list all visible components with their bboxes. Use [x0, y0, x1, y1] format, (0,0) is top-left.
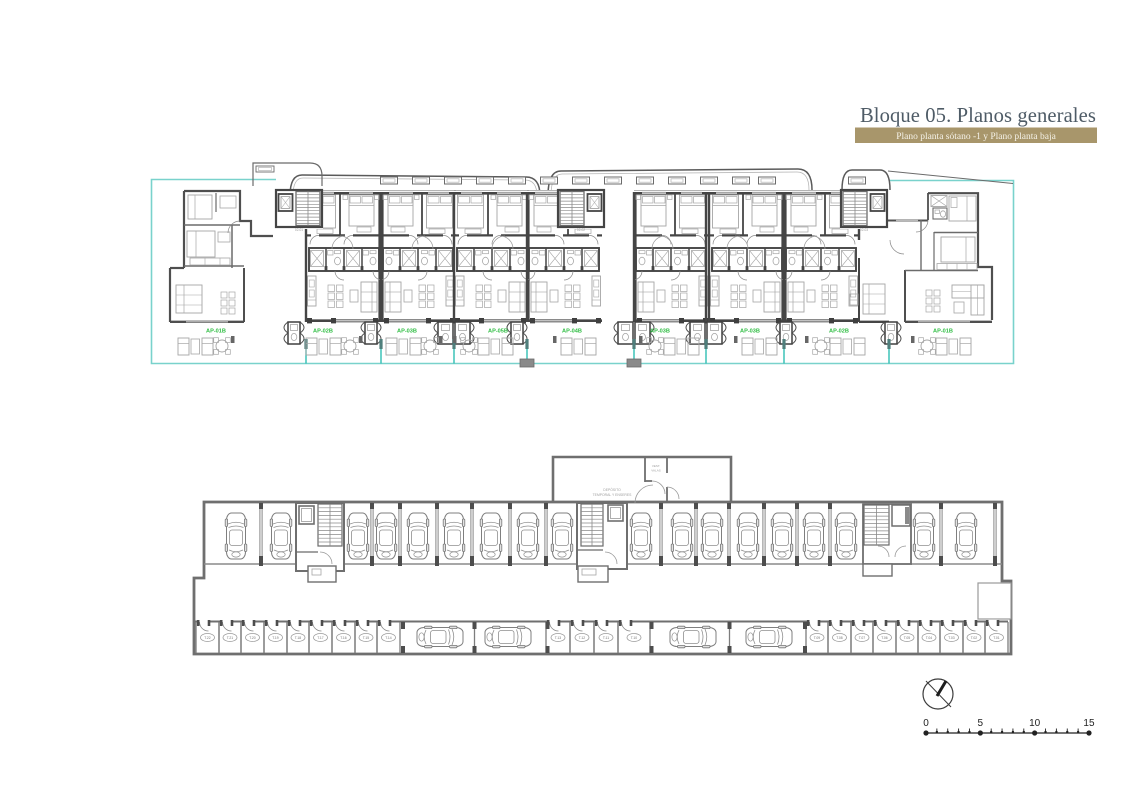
svg-text:AP-03B: AP-03B [650, 329, 670, 335]
svg-text:T.12: T.12 [579, 636, 586, 640]
svg-text:T.21: T.21 [227, 636, 234, 640]
svg-text:5: 5 [978, 718, 984, 729]
svg-text:T.20: T.20 [249, 636, 256, 640]
svg-text:AP-02B: AP-02B [829, 329, 849, 335]
svg-text:T.08: T.08 [836, 636, 843, 640]
svg-text:T.16: T.16 [340, 636, 347, 640]
svg-text:02-03: 02-03 [860, 228, 868, 232]
svg-text:AP-04B: AP-04B [562, 329, 582, 335]
svg-text:T.19: T.19 [272, 636, 279, 640]
svg-text:AP-01B: AP-01B [206, 329, 226, 335]
svg-text:T.15: T.15 [363, 636, 370, 640]
svg-text:T.09: T.09 [814, 636, 821, 640]
svg-text:T.17: T.17 [317, 636, 324, 640]
svg-text:T.02: T.02 [971, 636, 978, 640]
svg-text:10: 10 [1029, 718, 1041, 729]
svg-text:T.14: T.14 [385, 636, 392, 640]
svg-text:AP-05B: AP-05B [488, 329, 508, 335]
svg-text:Plano planta sótano -1 y Plano: Plano planta sótano -1 y Plano planta ba… [896, 132, 1056, 142]
svg-text:02-01: 02-01 [295, 228, 303, 232]
svg-text:02-02: 02-02 [577, 228, 585, 232]
svg-text:T.22: T.22 [204, 636, 211, 640]
svg-text:AP-03B: AP-03B [397, 329, 417, 335]
svg-text:0: 0 [923, 718, 929, 729]
svg-text:15: 15 [1083, 718, 1095, 729]
svg-text:AP-03B: AP-03B [740, 329, 760, 335]
svg-text:T.11: T.11 [603, 636, 609, 640]
svg-text:T.18: T.18 [295, 636, 302, 640]
svg-text:T.03: T.03 [948, 636, 955, 640]
svg-text:DEPÓSITO: DEPÓSITO [603, 487, 621, 492]
svg-text:VALAS: VALAS [651, 469, 660, 473]
svg-text:VEST.: VEST. [652, 464, 661, 468]
svg-text:AP-01B: AP-01B [933, 329, 953, 335]
svg-text:T.01: T.01 [993, 636, 1000, 640]
svg-text:T.05: T.05 [904, 636, 911, 640]
svg-text:T.07: T.07 [859, 636, 866, 640]
svg-text:T.04: T.04 [926, 636, 933, 640]
svg-text:TEMPORAL Y ENSERES: TEMPORAL Y ENSERES [593, 493, 632, 497]
svg-text:Bloque 05. Planos generales: Bloque 05. Planos generales [860, 105, 1096, 127]
svg-text:AP-02B: AP-02B [313, 329, 333, 335]
svg-text:T.13: T.13 [555, 636, 562, 640]
svg-text:T.10: T.10 [631, 636, 638, 640]
svg-text:T.06: T.06 [881, 636, 888, 640]
